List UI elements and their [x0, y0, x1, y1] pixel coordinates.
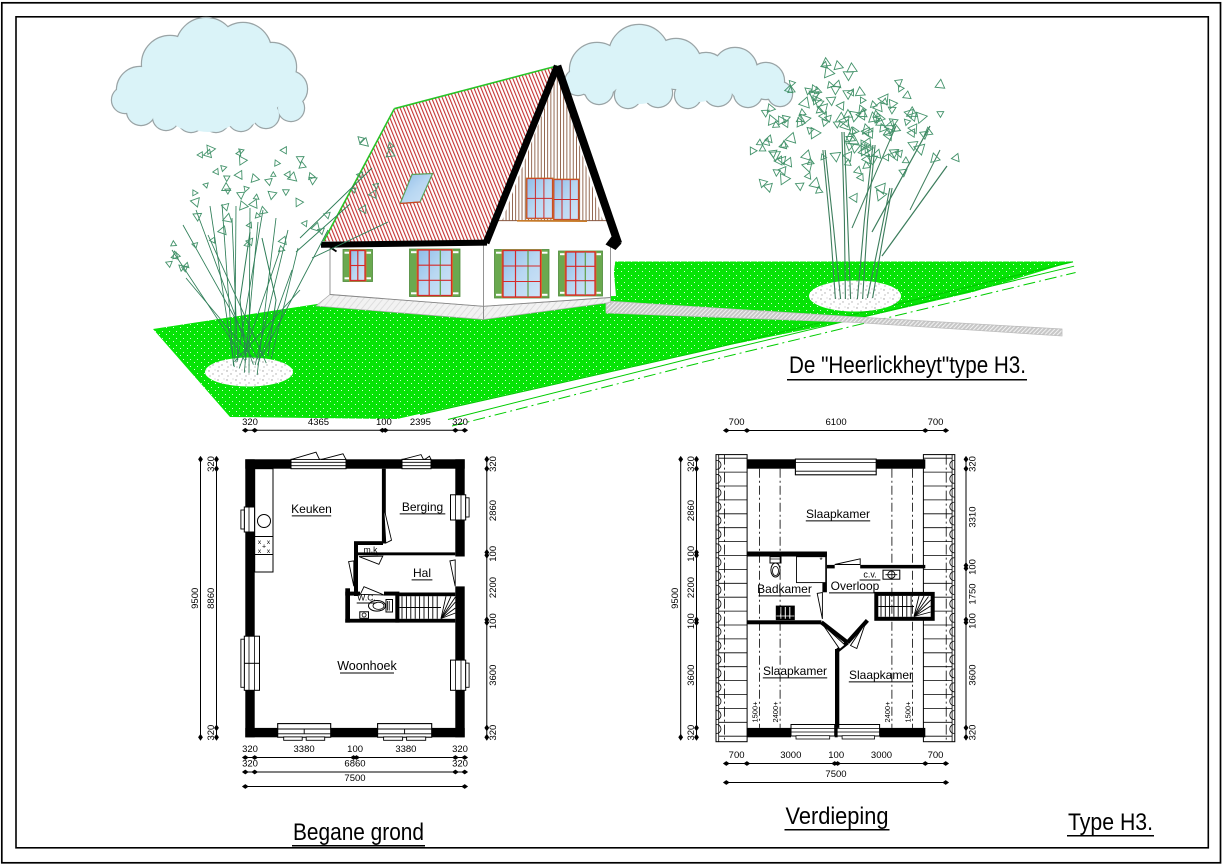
svg-text:100: 100	[967, 559, 978, 575]
svg-text:Begane grond: Begane grond	[293, 819, 424, 846]
svg-text:100: 100	[488, 613, 499, 629]
svg-text:100: 100	[347, 744, 363, 755]
svg-text:Hal: Hal	[413, 566, 431, 580]
svg-text:700: 700	[928, 750, 944, 761]
svg-text:3600: 3600	[686, 665, 697, 686]
svg-text:320: 320	[967, 456, 978, 472]
svg-text:700: 700	[729, 417, 745, 428]
svg-text:2860: 2860	[686, 500, 697, 521]
svg-text:3600: 3600	[488, 665, 499, 686]
svg-text:100: 100	[686, 546, 697, 562]
svg-text:Overloop: Overloop	[831, 579, 880, 593]
svg-text:320: 320	[488, 456, 499, 472]
svg-text:7500: 7500	[344, 773, 365, 784]
svg-text:3380: 3380	[294, 744, 315, 755]
svg-text:7500: 7500	[825, 769, 846, 780]
svg-text:320: 320	[967, 725, 978, 741]
svg-text:*: *	[819, 556, 822, 565]
svg-text:100: 100	[488, 546, 499, 562]
svg-text:3310: 3310	[967, 507, 978, 528]
svg-text:3000: 3000	[780, 750, 801, 761]
svg-text:100: 100	[686, 613, 697, 629]
svg-text:100: 100	[828, 750, 844, 761]
svg-text:1750: 1750	[967, 583, 978, 604]
svg-text:700: 700	[729, 750, 745, 761]
svg-text:320: 320	[686, 456, 697, 472]
svg-text:320: 320	[242, 417, 258, 428]
svg-text:Slaapkamer: Slaapkamer	[763, 664, 827, 678]
svg-text:Type H3.: Type H3.	[1068, 809, 1153, 836]
svg-text:m.k: m.k	[364, 544, 378, 554]
svg-text:2400+: 2400+	[883, 701, 892, 723]
svg-text:2200: 2200	[488, 577, 499, 598]
svg-text:+: +	[262, 544, 266, 551]
svg-text:100: 100	[376, 417, 392, 428]
svg-text:320: 320	[206, 725, 217, 741]
svg-text:8860: 8860	[206, 588, 217, 609]
svg-text:1500+: 1500+	[903, 701, 912, 723]
svg-text:320: 320	[206, 456, 217, 472]
svg-text:Woonhoek: Woonhoek	[337, 659, 397, 673]
svg-text:320: 320	[452, 417, 468, 428]
svg-text:2860: 2860	[488, 500, 499, 521]
svg-text:320: 320	[242, 744, 258, 755]
svg-text:9500: 9500	[670, 588, 681, 609]
svg-text:320: 320	[242, 759, 258, 770]
svg-text:6100: 6100	[826, 417, 847, 428]
svg-text:1500+: 1500+	[751, 701, 760, 723]
svg-text:320: 320	[452, 759, 468, 770]
svg-text:2400+: 2400+	[771, 701, 780, 723]
svg-text:3600: 3600	[967, 665, 978, 686]
svg-text:De "Heerlickheyt"type H3.: De "Heerlickheyt"type H3.	[789, 352, 1026, 379]
svg-text:320: 320	[452, 744, 468, 755]
svg-text:W.C.: W.C.	[357, 593, 375, 603]
svg-text:Berging: Berging	[402, 500, 443, 514]
svg-text:6860: 6860	[344, 759, 365, 770]
svg-text:100: 100	[967, 613, 978, 629]
svg-text:2200: 2200	[686, 577, 697, 598]
svg-text:2395: 2395	[410, 417, 431, 428]
svg-text:9500: 9500	[190, 588, 201, 609]
svg-text:4365: 4365	[308, 417, 329, 428]
svg-text:700: 700	[928, 417, 944, 428]
svg-text:320: 320	[488, 725, 499, 741]
svg-text:Verdieping: Verdieping	[786, 803, 889, 830]
svg-text:c.v.: c.v.	[863, 570, 876, 580]
svg-text:Keuken: Keuken	[291, 502, 332, 516]
svg-text:Slaapkamer: Slaapkamer	[806, 507, 870, 521]
svg-text:3380: 3380	[395, 744, 416, 755]
svg-text:3000: 3000	[871, 750, 892, 761]
svg-text:320: 320	[686, 725, 697, 741]
svg-text:Badkamer: Badkamer	[757, 582, 812, 596]
svg-text:Slaapkamer: Slaapkamer	[849, 668, 913, 682]
